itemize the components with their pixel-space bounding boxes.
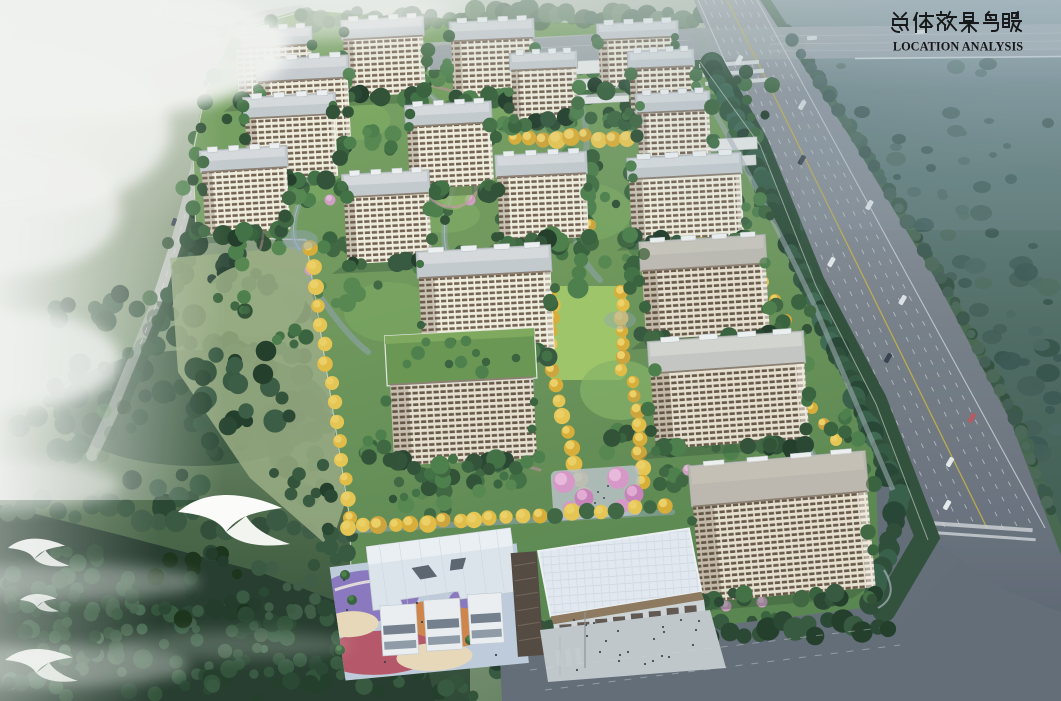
svg-text:LOCATION ANALYSIS: LOCATION ANALYSIS bbox=[893, 40, 1023, 54]
